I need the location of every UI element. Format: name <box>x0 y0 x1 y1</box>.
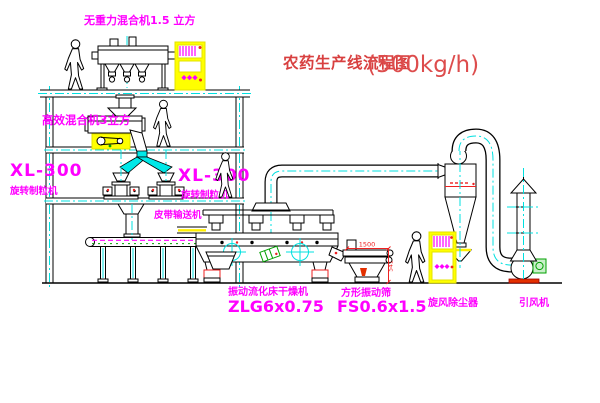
square-vibrating-sieve: 1500 541 <box>343 240 395 284</box>
control-cabinet-cyclone <box>429 232 456 283</box>
label-cyclone: 旋风除尘器 <box>427 296 479 309</box>
person-figure <box>65 40 84 89</box>
label-fan: 引风机 <box>519 296 549 309</box>
label-granulator-left-name: 旋转制粒机 <box>9 185 58 197</box>
control-cabinet-top <box>175 42 205 90</box>
label-top-mixer: 无重力混合机1.5 立方 <box>83 13 195 27</box>
drawing-title: 农药生产线流程图 (500kg/h) <box>282 52 479 78</box>
fluid-bed-dryer <box>177 210 346 282</box>
conveyor-legs <box>98 247 198 283</box>
person-figure <box>406 232 425 282</box>
gravity-free-mixer <box>92 36 179 90</box>
mixer-discharge-valves <box>105 64 149 82</box>
label-belt-conveyor: 皮带输送机 <box>153 209 202 221</box>
mixer-motor-box <box>92 134 130 149</box>
discharge-downpipe <box>118 204 144 240</box>
person-figure <box>154 100 172 146</box>
granulator-left <box>103 182 139 199</box>
label-sieve-model: FS0.6x1.5 <box>337 297 426 316</box>
label-granulator-left-model: XL-300 <box>10 161 82 181</box>
drawing-canvas: 无重力混合机1.5 立方 <box>0 0 600 403</box>
cad-flow-diagram: 无重力混合机1.5 立方 <box>0 0 600 403</box>
indicator-lights <box>435 264 450 269</box>
label-high-mixer: 高效混合机3立方 <box>42 113 131 127</box>
dim-sieve-height: 541 <box>388 260 395 272</box>
fan-base <box>509 279 539 283</box>
title-rate: (500kg/h) <box>367 52 479 78</box>
y-feed-duct <box>113 151 174 181</box>
dim-sieve-width: 1500 <box>359 241 376 249</box>
indicator-lights <box>181 75 197 80</box>
label-granulator-right-model: XL-300 <box>178 166 250 186</box>
label-dryer-model: ZLG6x0.75 <box>228 297 324 316</box>
